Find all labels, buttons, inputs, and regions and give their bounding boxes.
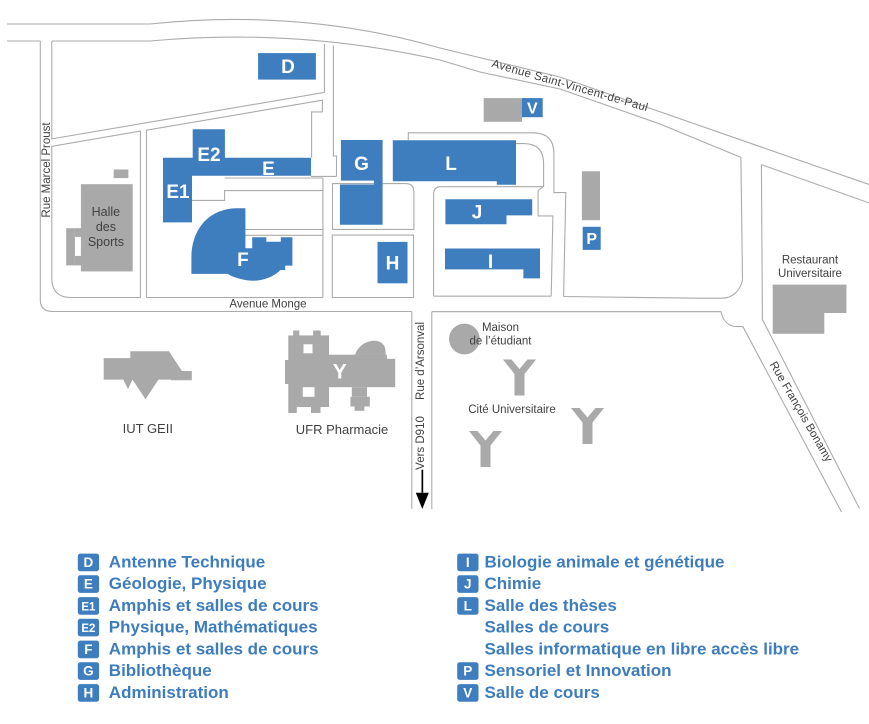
svg-text:Géologie, Physique: Géologie, Physique (109, 574, 267, 593)
svg-text:V: V (527, 101, 538, 118)
svg-text:E2: E2 (81, 623, 95, 635)
svg-text:Avenue Monge: Avenue Monge (229, 299, 306, 311)
svg-text:E: E (262, 159, 275, 180)
svg-text:I: I (466, 555, 470, 570)
svg-text:Rue Marcel Proust: Rue Marcel Proust (41, 122, 53, 218)
svg-text:F: F (237, 250, 249, 271)
svg-text:P: P (463, 664, 472, 679)
svg-text:I: I (488, 252, 493, 273)
svg-text:E1: E1 (81, 601, 96, 613)
svg-text:D: D (281, 57, 295, 78)
svg-text:Rue François Bonamy: Rue François Bonamy (767, 360, 834, 465)
svg-text:J: J (464, 577, 472, 592)
svg-text:Chimie: Chimie (485, 574, 542, 593)
svg-text:G: G (83, 664, 94, 679)
svg-text:L: L (464, 598, 472, 613)
svg-text:Antenne Technique: Antenne Technique (109, 552, 265, 571)
svg-text:Universitaire: Universitaire (778, 268, 842, 280)
svg-text:Rue d’Arsonval: Rue d’Arsonval (415, 322, 427, 400)
svg-text:G: G (354, 154, 369, 175)
svg-text:de l’étudiant: de l’étudiant (469, 336, 532, 348)
svg-text:Restaurant: Restaurant (782, 255, 839, 267)
svg-text:Salle des thèses: Salle des thèses (485, 596, 617, 615)
svg-text:Amphis et salles de cours: Amphis et salles de cours (109, 639, 319, 658)
svg-text:P: P (586, 231, 597, 248)
svg-text:Halle: Halle (92, 205, 121, 219)
svg-text:D: D (84, 555, 94, 570)
svg-text:E1: E1 (166, 182, 190, 203)
svg-text:F: F (84, 642, 92, 657)
svg-text:H: H (386, 254, 400, 275)
svg-text:Biologie animale et génétique: Biologie animale et génétique (485, 552, 725, 571)
svg-text:Sensoriel et Innovation: Sensoriel et Innovation (485, 661, 672, 680)
svg-text:des: des (96, 220, 116, 234)
svg-text:UFR Pharmacie: UFR Pharmacie (296, 422, 388, 437)
svg-text:L: L (445, 154, 457, 175)
svg-text:Salles de cours: Salles de cours (485, 618, 610, 637)
svg-text:IUT GEII: IUT GEII (123, 421, 173, 436)
svg-text:Y: Y (333, 361, 347, 384)
svg-text:J: J (472, 203, 483, 224)
svg-text:Cité Universitaire: Cité Universitaire (468, 404, 556, 416)
svg-text:V: V (463, 685, 472, 700)
svg-text:Salles informatique en libre a: Salles informatique en libre accès libre (485, 639, 800, 658)
svg-text:E2: E2 (197, 145, 220, 166)
svg-text:Sports: Sports (88, 235, 124, 249)
svg-text:Amphis et salles de cours: Amphis et salles de cours (109, 596, 319, 615)
svg-text:Vers D910: Vers D910 (415, 416, 427, 470)
svg-text:H: H (84, 685, 94, 700)
svg-text:Salle de cours: Salle de cours (485, 683, 600, 702)
svg-text:E: E (84, 577, 93, 592)
svg-text:Bibliothèque: Bibliothèque (109, 661, 212, 680)
svg-text:Administration: Administration (109, 683, 229, 702)
svg-text:Physique, Mathématiques: Physique, Mathématiques (109, 618, 318, 637)
svg-text:Maison: Maison (482, 322, 519, 334)
